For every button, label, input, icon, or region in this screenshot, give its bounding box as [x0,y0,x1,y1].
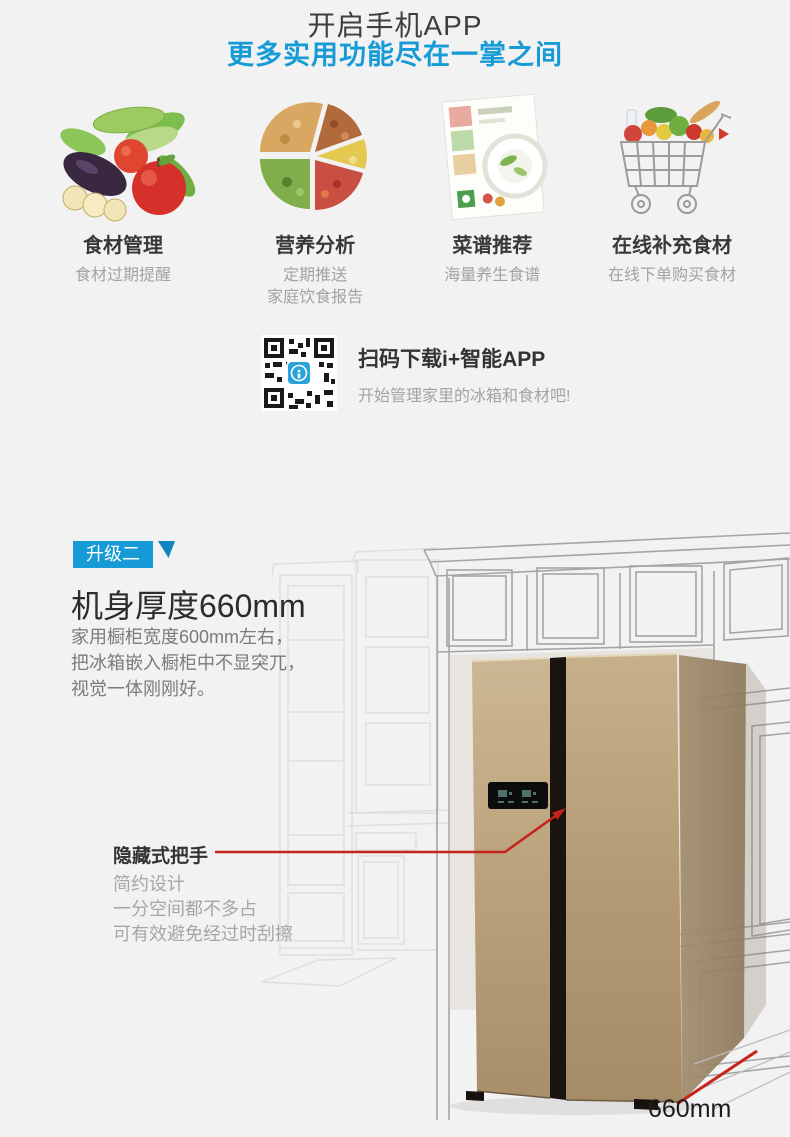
feature-desc-line: 海量养生食谱 [444,265,540,287]
upgrade-body-line: 家用橱柜宽度600mm左右， [71,624,305,650]
fridge-right-door [566,654,682,1102]
nutrition-pie-icon [245,94,385,224]
feature-desc-line: 定期推送 [267,265,363,287]
page-subtitle: 更多实用功能尽在一掌之间 [0,33,790,72]
feature-desc: 定期推送 家庭饮食报告 [267,265,363,309]
fridge-photo [450,654,746,1115]
feature-desc: 海量养生食谱 [444,265,540,287]
qr-text-block: 扫码下载i+智能APP 开始管理家里的冰箱和食材吧! [358,335,570,406]
qr-code [261,335,337,411]
feature-desc-line: 食材过期提醒 [75,265,171,287]
grocery-cart-photo [597,86,747,224]
hidden-handle-label: 隐藏式把手 [113,841,208,868]
qr-subtitle: 开始管理家里的冰箱和食材吧! [358,382,570,406]
fridge-hidden-handle-gap [550,657,566,1100]
feature-row: 食材管理 食材过期提醒 [28,86,762,309]
fresh-produce-icon [43,90,203,224]
feature-title: 食材管理 [83,229,163,258]
hidden-handle-desc-line: 一分空间都不多占 [113,897,293,922]
fresh-produce-photo [43,86,203,224]
feature-desc: 食材过期提醒 [75,265,171,287]
fridge-side-panel [679,655,746,1102]
feature-ingredient-management: 食材管理 食材过期提醒 [28,86,218,309]
hidden-handle-desc-line: 可有效避免经过时刮擦 [113,922,293,947]
recipe-book-photo [422,86,562,224]
hidden-handle-desc-line: 简约设计 [113,872,293,897]
promo-page: 开启手机APP 更多实用功能尽在一掌之间 [0,0,790,1137]
qr-title: 扫码下载i+智能APP [358,343,570,373]
feature-title: 菜谱推荐 [452,229,532,258]
fridge-foot [466,1091,484,1101]
upgrade-body-line: 视觉一体刚刚好。 [71,676,305,702]
niche-side-shadow [744,662,766,1038]
upgrade-badge: 升级二 [73,541,153,568]
qr-code-icon [261,335,337,411]
feature-nutrition-analysis: 营养分析 定期推送 家庭饮食报告 [228,86,403,309]
grocery-cart-icon [597,90,747,224]
feature-recipe-recommend: 菜谱推荐 海量养生食谱 [412,86,572,309]
upgrade-body: 家用橱柜宽度600mm左右， 把冰箱嵌入橱柜中不显突兀， 视觉一体刚刚好。 [71,624,305,702]
fridge-display-panel [488,782,548,809]
app-logo-icon [287,361,311,385]
feature-desc: 在线下单购买食材 [608,265,736,287]
upgrade-heading: 机身厚度660mm [71,581,306,627]
feature-title: 营养分析 [275,229,355,258]
feature-desc-line: 在线下单购买食材 [608,265,736,287]
feature-desc-line: 家庭饮食报告 [267,287,363,309]
depth-dimension-label: 660mm [648,1095,731,1124]
upgrade-body-line: 把冰箱嵌入橱柜中不显突兀， [71,650,305,676]
feature-online-restock: 在线补充食材 在线下单购买食材 [582,86,762,309]
fridge-left-door [472,658,550,1098]
feature-title: 在线补充食材 [612,229,732,258]
hidden-handle-desc: 简约设计 一分空间都不多占 可有效避免经过时刮擦 [113,872,293,947]
nutrition-pie-photo [245,86,385,224]
recipe-book-icon [422,90,562,224]
app-download-block: 扫码下载i+智能APP 开始管理家里的冰箱和食材吧! [261,335,570,411]
